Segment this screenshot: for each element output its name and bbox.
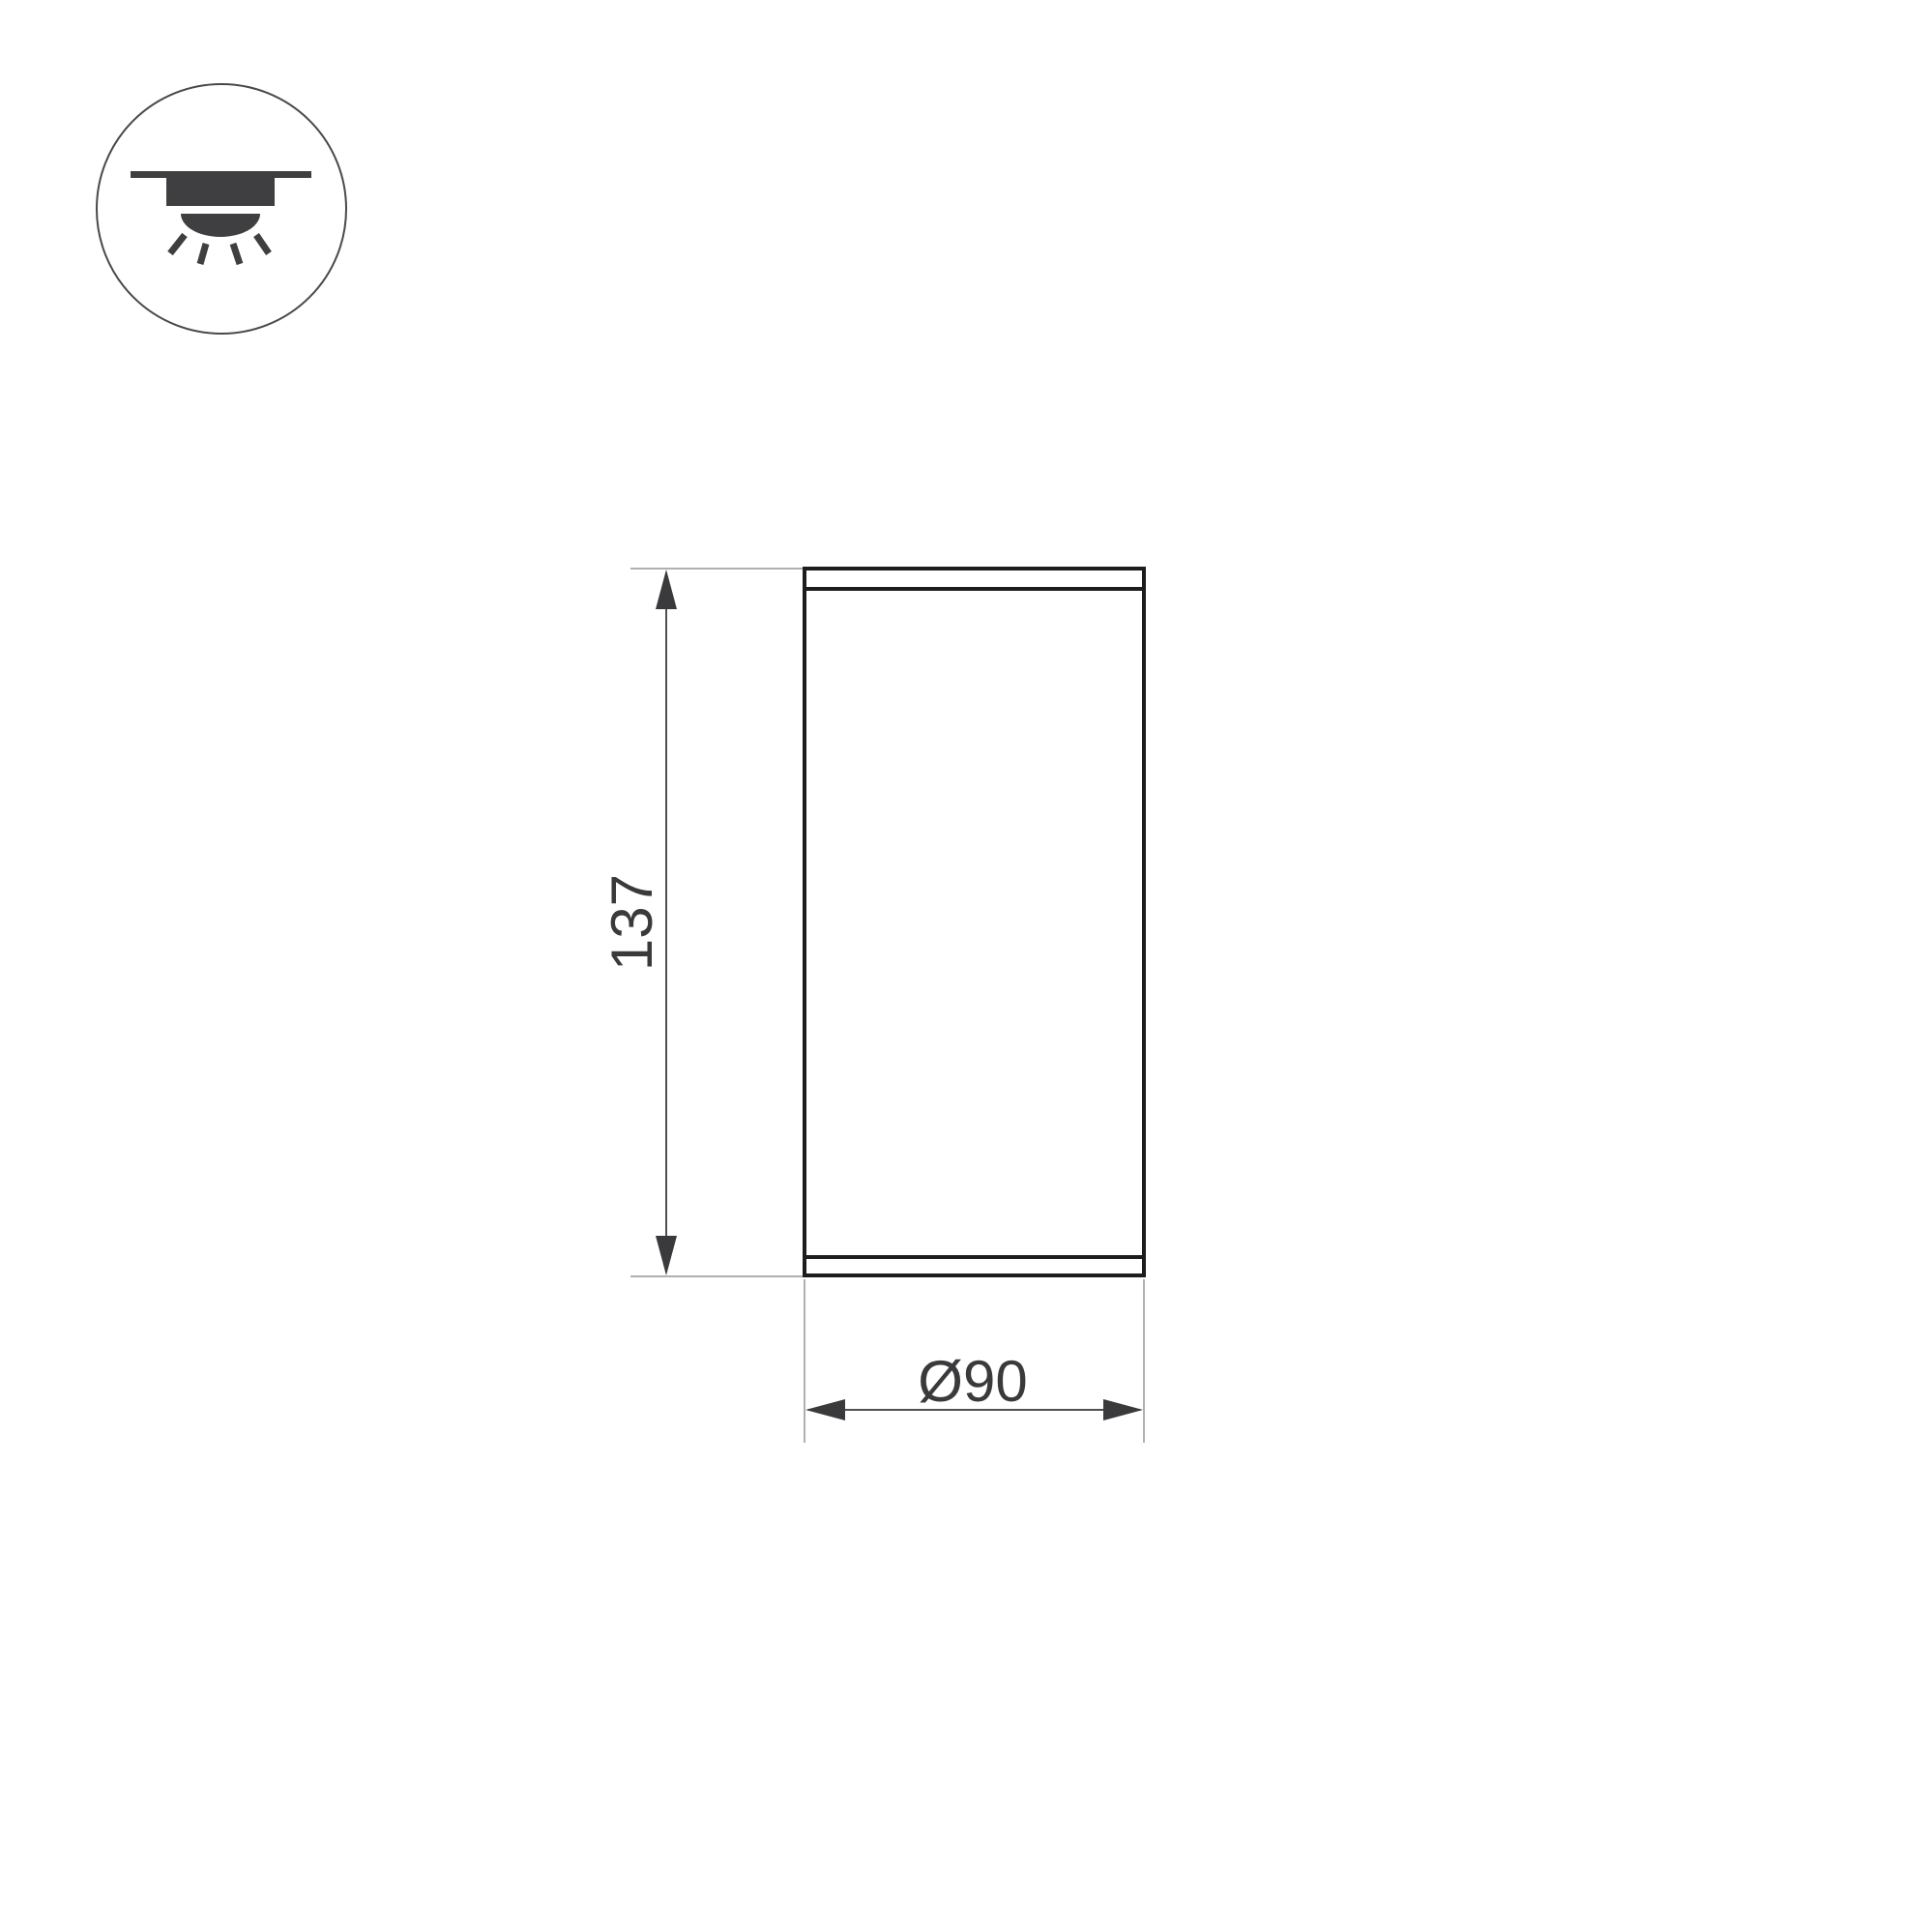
fixture-dimension-drawing xyxy=(0,0,1932,1932)
dimension-drawing-page: 137 Ø90 xyxy=(0,0,1932,1932)
height-arrow-down xyxy=(656,1236,677,1275)
diameter-dimension-label: Ø90 xyxy=(828,1352,1118,1412)
height-dimension-label: 137 xyxy=(602,816,662,1029)
height-arrow-up xyxy=(656,570,677,609)
fixture-outline xyxy=(805,569,1144,1275)
